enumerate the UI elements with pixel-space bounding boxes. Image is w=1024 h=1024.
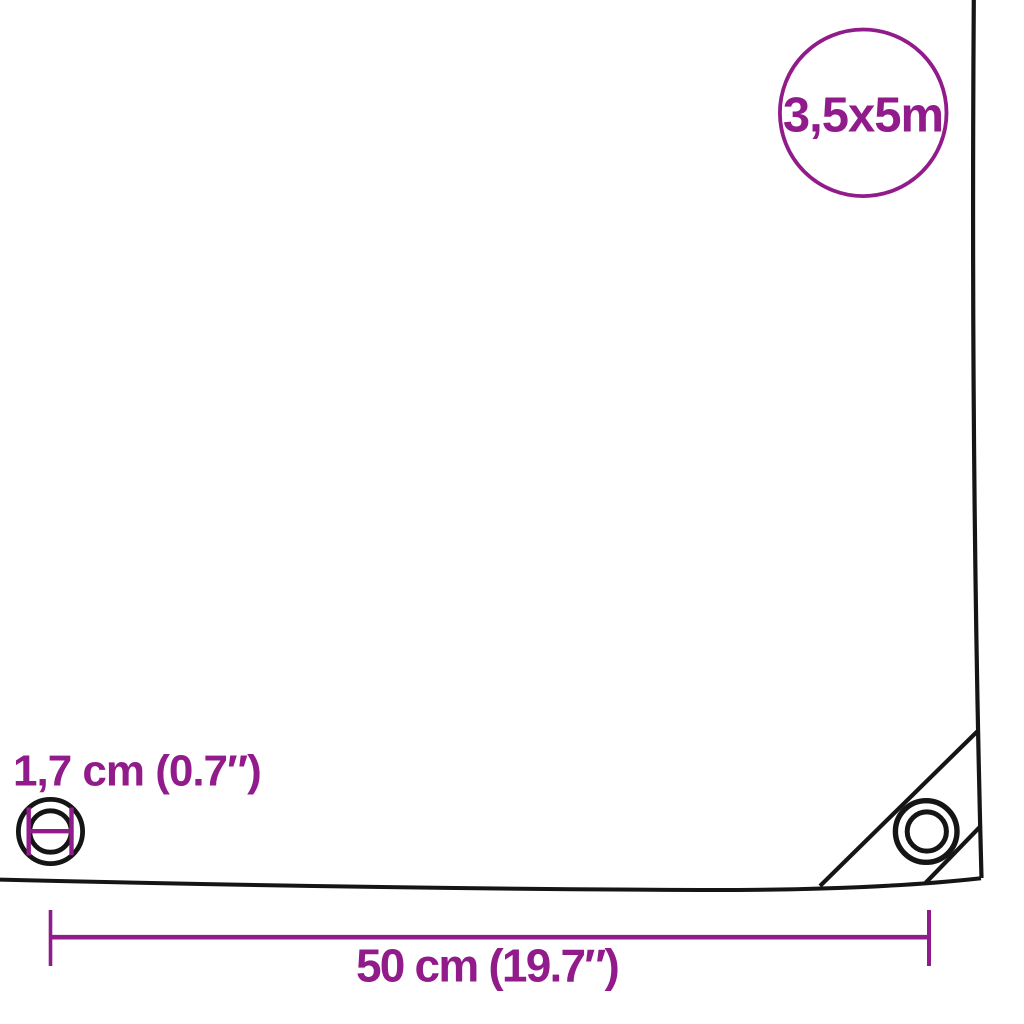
svg-text:50 cm (19.7″): 50 cm (19.7″) — [356, 940, 618, 992]
svg-text:3,5x5m: 3,5x5m — [783, 88, 943, 142]
svg-text:1,7 cm (0.7″): 1,7 cm (0.7″) — [13, 747, 261, 796]
